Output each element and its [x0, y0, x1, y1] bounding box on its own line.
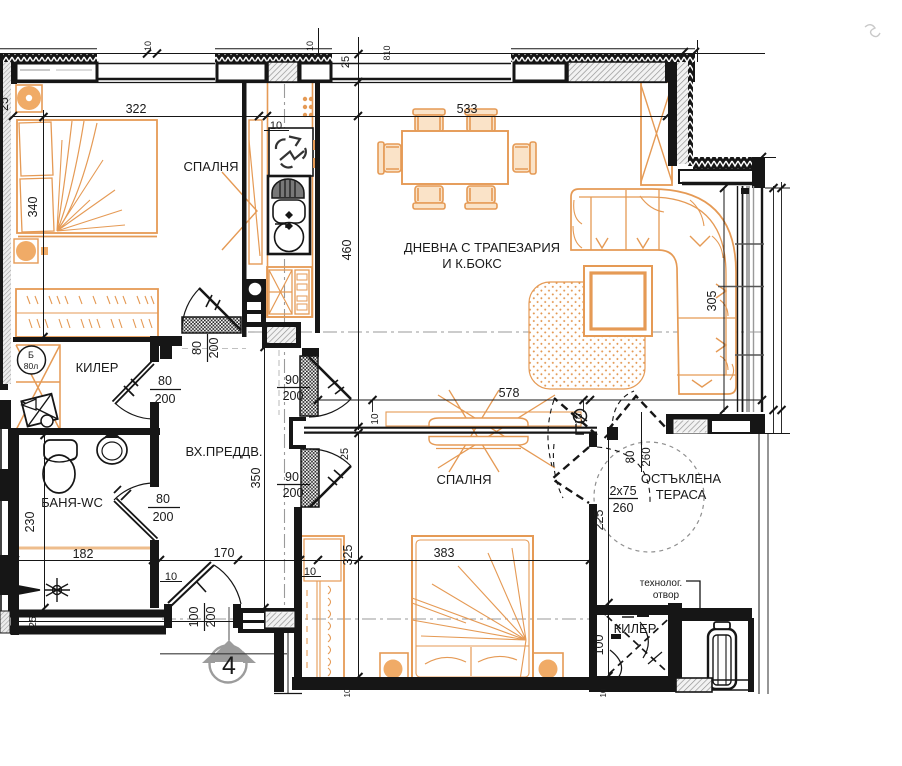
svg-text:170: 170: [214, 546, 235, 560]
svg-text:25: 25: [339, 448, 351, 460]
svg-text:80: 80: [625, 451, 637, 464]
svg-text:КИЛЕР: КИЛЕР: [76, 360, 119, 375]
svg-text:200: 200: [283, 389, 304, 403]
svg-text:200: 200: [155, 392, 176, 406]
svg-text:25: 25: [0, 97, 11, 111]
svg-text:350: 350: [249, 468, 263, 489]
svg-text:технолог.: технолог.: [640, 578, 682, 589]
svg-text:80л: 80л: [24, 361, 38, 371]
svg-text:10: 10: [270, 120, 282, 132]
svg-text:ТЕРАСА: ТЕРАСА: [656, 487, 707, 502]
svg-text:4: 4: [222, 652, 236, 680]
svg-text:Б: Б: [28, 350, 34, 360]
svg-text:СПАЛНЯ: СПАЛНЯ: [437, 472, 492, 487]
svg-text:10: 10: [165, 571, 177, 583]
svg-text:200: 200: [283, 486, 304, 500]
svg-text:325: 325: [341, 545, 355, 566]
svg-text:ДНЕВНА С ТРАПЕЗАРИЯ: ДНЕВНА С ТРАПЕЗАРИЯ: [404, 240, 560, 255]
svg-text:533: 533: [457, 102, 478, 116]
svg-text:225: 225: [592, 510, 606, 531]
svg-text:182: 182: [73, 547, 94, 561]
svg-text:200: 200: [204, 607, 218, 628]
svg-text:25: 25: [340, 56, 352, 68]
svg-text:80: 80: [158, 374, 172, 388]
svg-text:ОСТЪКЛЕНА: ОСТЪКЛЕНА: [641, 471, 721, 486]
svg-text:460: 460: [340, 240, 354, 261]
svg-text:90: 90: [285, 470, 299, 484]
svg-text:25: 25: [28, 616, 39, 628]
svg-text:200: 200: [207, 338, 221, 359]
svg-text:322: 322: [126, 102, 147, 116]
svg-text:10: 10: [574, 413, 585, 425]
svg-text:10: 10: [304, 566, 316, 578]
svg-text:И К.БОКС: И К.БОКС: [442, 256, 501, 271]
svg-text:100: 100: [187, 607, 201, 628]
svg-text:БАНЯ-WC: БАНЯ-WC: [41, 495, 103, 510]
svg-text:10: 10: [599, 688, 608, 697]
svg-text:10: 10: [370, 413, 381, 425]
svg-text:340: 340: [26, 197, 40, 218]
svg-text:80: 80: [156, 492, 170, 506]
svg-text:260: 260: [641, 447, 653, 466]
svg-text:810: 810: [382, 45, 392, 60]
svg-text:260: 260: [613, 501, 634, 515]
svg-text:2x75: 2x75: [609, 484, 636, 498]
svg-text:230: 230: [23, 512, 37, 533]
svg-text:ВХ.ПРЕДДВ.: ВХ.ПРЕДДВ.: [186, 444, 263, 459]
svg-text:305: 305: [705, 291, 719, 312]
svg-text:90: 90: [285, 373, 299, 387]
svg-text:383: 383: [434, 546, 455, 560]
svg-text:10: 10: [143, 41, 153, 51]
svg-text:10: 10: [343, 688, 352, 697]
svg-text:КИЛЕР: КИЛЕР: [614, 621, 657, 636]
svg-text:отвор: отвор: [653, 590, 680, 601]
svg-text:200: 200: [153, 510, 174, 524]
svg-text:578: 578: [499, 386, 520, 400]
svg-text:80: 80: [190, 341, 204, 355]
svg-text:10: 10: [305, 41, 315, 51]
svg-text:СПАЛНЯ: СПАЛНЯ: [184, 159, 239, 174]
svg-text:100: 100: [592, 635, 606, 656]
